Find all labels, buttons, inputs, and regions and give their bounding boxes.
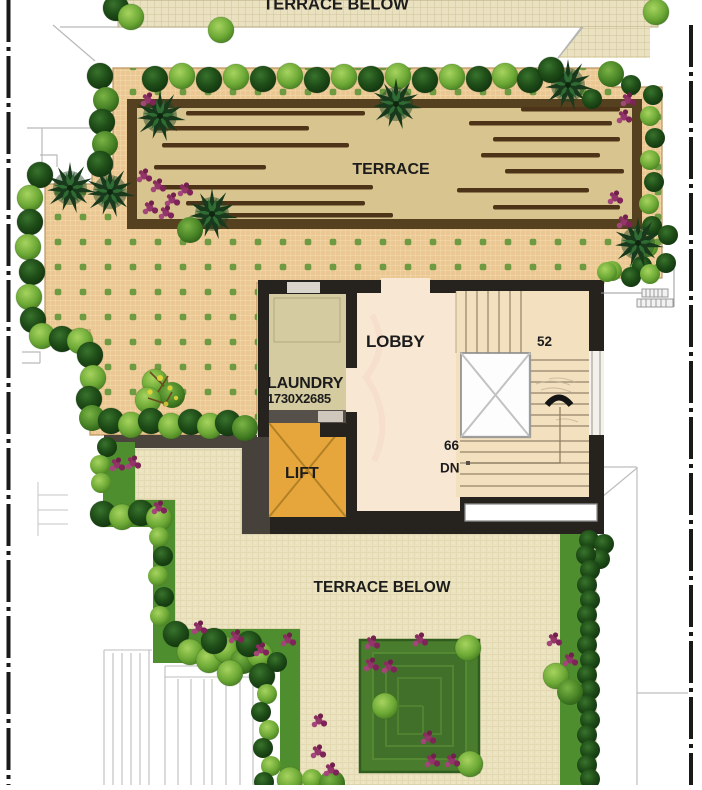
svg-text:52: 52: [537, 334, 552, 349]
svg-text:DN: DN: [440, 461, 460, 476]
svg-text:TERRACE BELOW: TERRACE BELOW: [314, 579, 451, 596]
svg-text:LOBBY: LOBBY: [366, 332, 425, 351]
svg-text:LAUNDRY: LAUNDRY: [267, 375, 344, 392]
svg-text:TERRACE: TERRACE: [352, 161, 430, 178]
svg-text:66: 66: [444, 438, 460, 453]
svg-text:LIFT: LIFT: [285, 465, 319, 482]
svg-text:1730X2685: 1730X2685: [267, 391, 331, 406]
svg-text:TERRACE BELOW: TERRACE BELOW: [263, 0, 409, 14]
